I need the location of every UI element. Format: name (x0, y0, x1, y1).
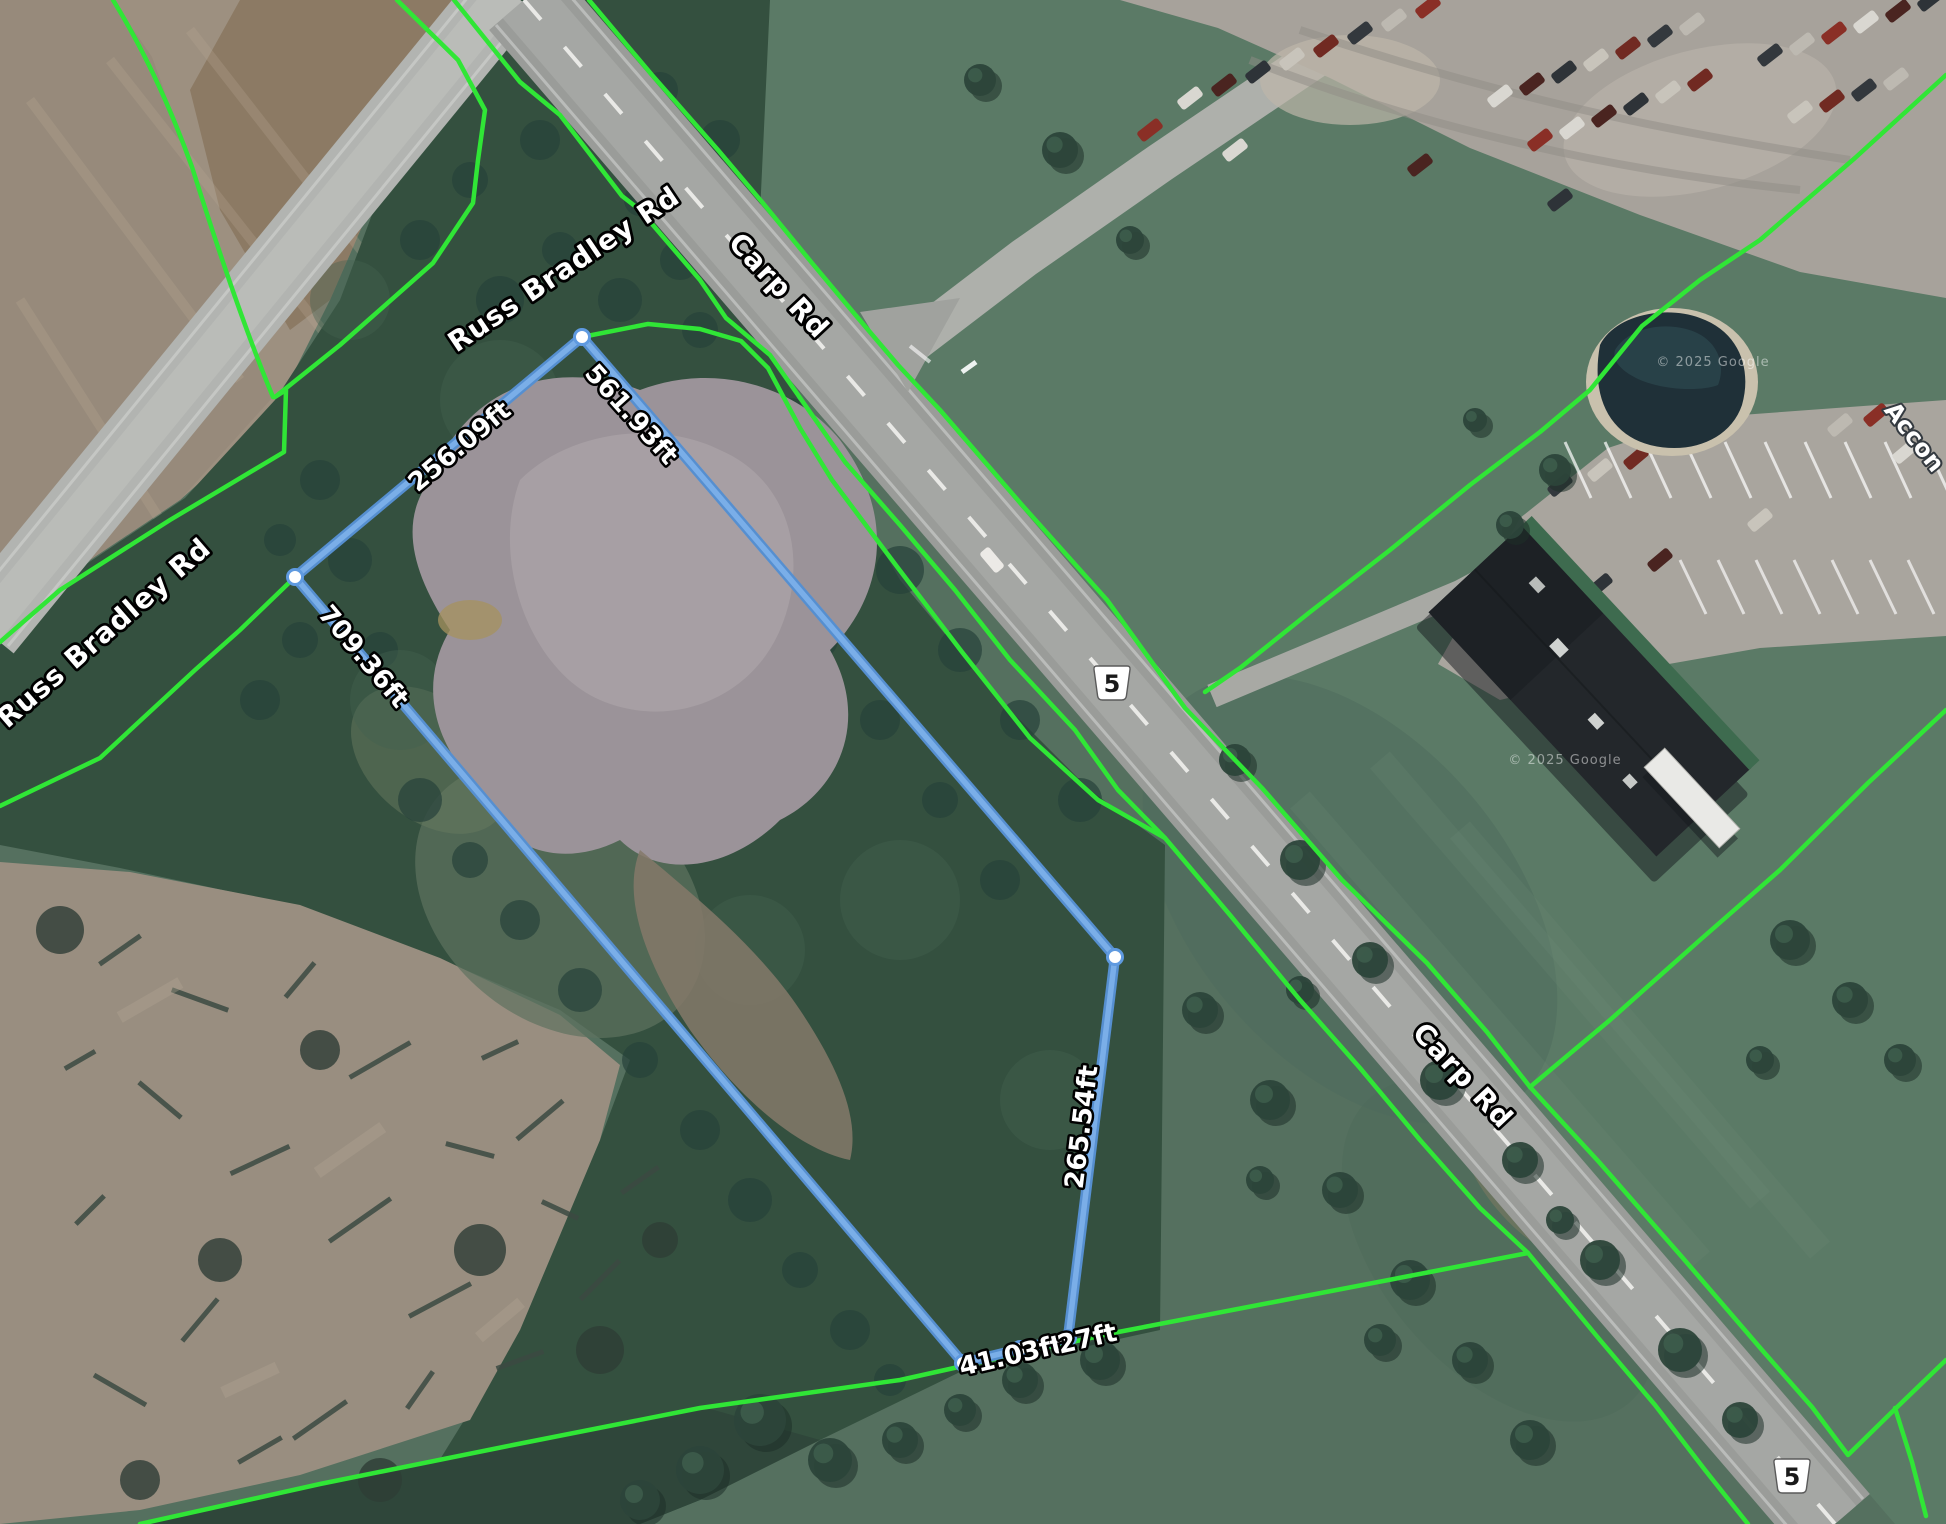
measurement-vertex[interactable] (288, 570, 303, 585)
route-shield-number: 5 (1104, 670, 1121, 698)
map-attribution-watermark: © 2025 Google (1656, 355, 1769, 370)
route-shield-north: 5 (1094, 666, 1130, 700)
measurement-vertex[interactable] (575, 330, 590, 345)
satellite-map-view[interactable]: 256.09ft 561.93ft 709.36ft 265.54ft 41.0… (0, 0, 1946, 1524)
measurement-vertex[interactable] (1108, 950, 1123, 965)
route-shield-number: 5 (1784, 1463, 1801, 1491)
pond (1586, 308, 1758, 456)
route-shield-south: 5 (1774, 1459, 1810, 1493)
map-attribution-watermark: © 2025 Google (1508, 753, 1621, 768)
